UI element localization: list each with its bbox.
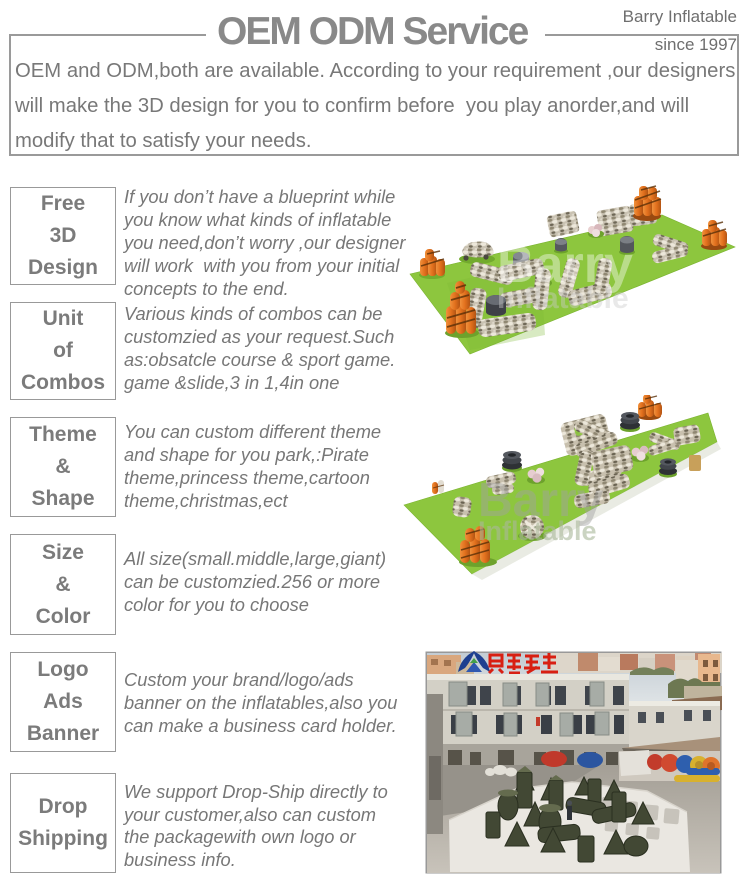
svg-text:Inflatable: Inflatable: [497, 282, 629, 315]
svg-text:Inflatable: Inflatable: [478, 516, 597, 546]
